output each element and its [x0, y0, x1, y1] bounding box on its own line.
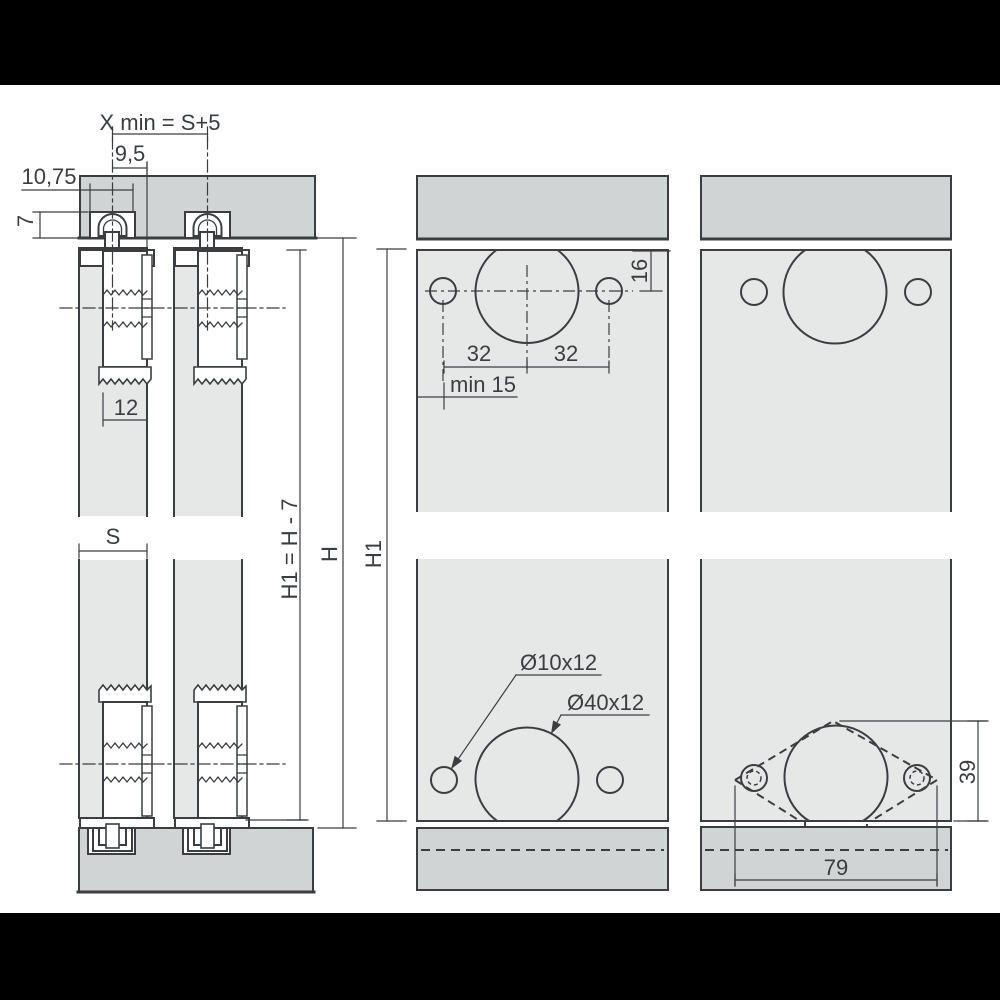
- fitting-body: [198, 251, 242, 367]
- fitting-body: [198, 702, 242, 820]
- fitting-body: [103, 251, 147, 367]
- guide-pin: [106, 824, 119, 848]
- dim-7: 7: [13, 215, 38, 227]
- dim-79: 79: [824, 855, 848, 880]
- dim-39: 39: [955, 760, 980, 784]
- dim-h: H: [317, 546, 342, 562]
- bottom-track: [417, 828, 668, 890]
- guide-pin: [201, 824, 214, 848]
- dim-small-hole: Ø10x12: [520, 650, 597, 675]
- dim-large-hole: Ø40x12: [567, 690, 644, 715]
- adjustment-screw: [142, 706, 152, 816]
- panel-upper: [701, 250, 951, 512]
- dim-s: S: [106, 524, 121, 549]
- dim-12: 12: [114, 395, 138, 420]
- adjustment-screw: [237, 255, 247, 359]
- top-track: [701, 176, 951, 239]
- technical-drawing-page: X min = S+5 9,5 10,75 7 12 S H1 = H - 7 …: [0, 0, 1000, 1000]
- dim-h1-formula: H1 = H - 7: [277, 499, 302, 600]
- dim-32-right: 32: [554, 341, 578, 366]
- adjustment-screw: [142, 255, 152, 359]
- dim-h1: H1: [361, 540, 386, 568]
- fitting-body: [103, 702, 147, 820]
- dim-xmin: X min = S+5: [99, 110, 220, 135]
- installation-diagram: X min = S+5 9,5 10,75 7 12 S H1 = H - 7 …: [0, 0, 1000, 1000]
- dim-min15: min 15: [450, 372, 516, 397]
- dim-16: 16: [627, 259, 652, 283]
- dim-32-left: 32: [467, 341, 491, 366]
- dim-9-5: 9,5: [115, 141, 146, 166]
- dim-10-75: 10,75: [21, 164, 76, 189]
- adjustment-screw: [237, 706, 247, 816]
- top-track: [417, 176, 668, 239]
